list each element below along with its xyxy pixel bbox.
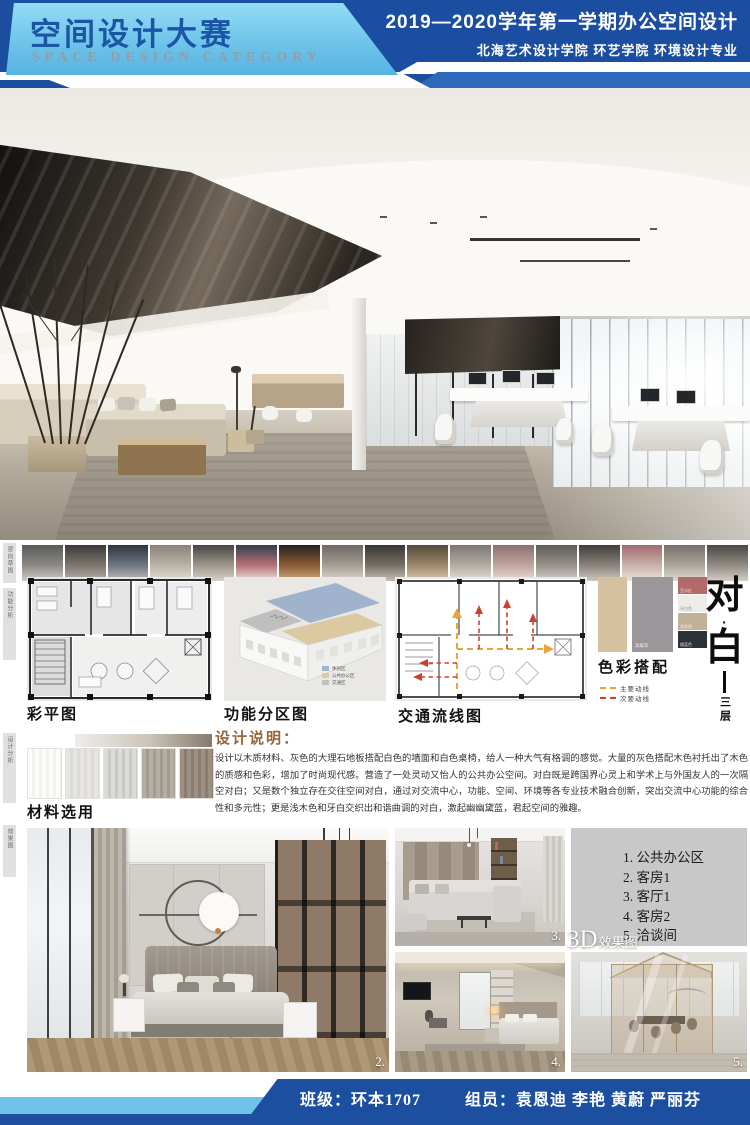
theme-floor-label: 三层	[717, 696, 733, 724]
thumbnail-image	[193, 545, 234, 581]
circulation-label: 交通流线图	[398, 705, 483, 726]
team-label: 组员：袁恩迪 李艳 黄蔚 严丽芬	[465, 1086, 701, 1110]
zoning-axon-drawing	[224, 577, 386, 701]
bedroom2-pillow	[523, 1014, 537, 1022]
hero-reception-chair	[296, 408, 312, 422]
route-dash	[600, 687, 616, 689]
thumbnail-image	[664, 545, 705, 581]
side-rail-function: 功能分析	[3, 588, 16, 660]
theme-divider-line	[723, 671, 726, 693]
palette-swatch-gray: 高级灰	[632, 577, 673, 652]
footer-credits: 班级：环本1707 组员：袁恩迪 李艳 黄蔚 严丽芬	[300, 1086, 701, 1110]
decor-gradient-bar	[75, 734, 212, 747]
route-label: 次要动线	[620, 693, 650, 703]
hero-monitor	[640, 388, 660, 402]
hero-floor-lamp-shade	[231, 366, 241, 373]
color-floor-plan	[27, 577, 212, 701]
zoning-diagram: 休闲区公共办公区交通区	[224, 577, 386, 701]
hero-monitor	[536, 372, 555, 385]
thumbnail-image	[279, 545, 320, 581]
thumbnail-image	[407, 545, 448, 581]
circulation-plan	[395, 577, 587, 701]
label-render-cn: 效果图	[599, 932, 638, 951]
meeting-floor	[571, 1053, 747, 1072]
zoning-legend-label: 休闲区	[332, 666, 346, 672]
circulation-legend-row: 主要动线	[600, 683, 650, 693]
bedroom-lamp-shade	[119, 974, 129, 983]
bedroom-nightstand	[283, 1002, 317, 1038]
hero-track-light	[520, 260, 630, 262]
thumbnail-image	[579, 545, 620, 581]
bedroom2-tv	[403, 982, 431, 1000]
room-list-item: 1. 公共办公区	[623, 848, 704, 868]
thumbnail-image	[150, 545, 191, 581]
material-swatches	[27, 748, 214, 799]
photo-number: 3.	[551, 928, 561, 944]
render-meeting-room: 5.	[571, 952, 747, 1072]
hero-monitor	[468, 372, 487, 385]
palette-gray-label: 高级灰	[635, 643, 649, 649]
bedroom2-pillow	[505, 1014, 519, 1022]
hero-desk-white	[612, 406, 750, 421]
photo-number: 4.	[551, 1054, 561, 1070]
reference-thumbnail-strip	[22, 545, 748, 581]
side-label-render: 效果图	[5, 828, 14, 849]
theme-char-bottom: 白	[705, 628, 743, 668]
hero-track-light	[470, 238, 640, 241]
design-notes-body: 设计以木质材料、灰色的大理石地板搭配白色的墙面和白色桌椅，给人一种大气有格调的感…	[215, 750, 748, 816]
zoning-legend-label: 交通区	[332, 680, 346, 686]
color-plan-label: 彩平图	[27, 703, 78, 724]
living-floor	[395, 932, 565, 946]
hero-plant-pot	[246, 430, 264, 444]
hero-ceiling-light	[430, 222, 437, 224]
label-3d: 3D	[567, 926, 598, 954]
bedroom-window	[27, 828, 94, 1060]
hero-desk-base	[470, 401, 568, 427]
palette-swatch-label: 黛蓝色	[680, 642, 692, 647]
living-sofa-chaise	[493, 886, 521, 922]
side-rail-design: 设计分析	[3, 733, 16, 803]
route-dash	[600, 697, 616, 699]
school-name: 北海艺术设计学院 环艺学院 环境设计专业	[477, 40, 738, 59]
thumbnail-image	[65, 545, 106, 581]
render-living-room: 3.	[395, 828, 565, 946]
bedroom2-window	[459, 972, 491, 1030]
material-swatch	[179, 748, 214, 799]
zoning-legend-row: 公共办公区	[322, 672, 355, 679]
bedroom2-desk	[429, 1018, 447, 1028]
hero-ceiling-light	[380, 216, 387, 218]
side-rail-render: 效果图	[3, 825, 16, 877]
hero-floor-lamp	[236, 372, 238, 430]
hero-sofa-pillow	[139, 398, 156, 411]
living-sofa-pillow	[435, 884, 449, 894]
bedroom-window-mullion	[47, 828, 49, 1060]
photo-number: 5.	[733, 1054, 743, 1070]
living-ceiling	[395, 828, 565, 842]
zoning-legend-chip	[322, 673, 329, 678]
render-bedroom-main: 2.	[27, 828, 389, 1072]
photo-number: 2.	[375, 1054, 385, 1070]
hero-sofa-pillow	[118, 397, 136, 411]
poster-title-en: SPACE DESIGN CATEGORY	[32, 50, 322, 66]
renders-section-label: 3D 效果图	[567, 926, 638, 954]
course-title: 2019—2020学年第一学期办公空间设计	[385, 7, 738, 34]
palette-swatch-tan	[598, 577, 627, 652]
living-table-leg	[485, 920, 487, 928]
zoning-legend-chip	[322, 680, 329, 685]
palette-swatch-label: 豆沙红	[680, 588, 692, 593]
thumbnail-image	[493, 545, 534, 581]
hero-sculpt-chair	[435, 414, 455, 444]
hero-desk-white	[450, 388, 588, 401]
thumbnail-image	[365, 545, 406, 581]
poster-title-cn: 空间设计大赛	[30, 9, 234, 54]
thumbnail-image	[22, 545, 63, 581]
side-label-design: 设计分析	[5, 736, 14, 764]
hero-coffee-table	[118, 440, 206, 475]
hero-sculpt-chair	[592, 424, 614, 456]
living-sofa-pillow	[415, 884, 429, 894]
room-list-item: 4. 客房2	[623, 907, 704, 927]
hero-sofa-pillow	[160, 398, 177, 411]
room-list-item: 3. 客厅1	[623, 887, 704, 907]
bedroom2-lamp-glow	[491, 1008, 497, 1014]
side-rail-concept: 意向草图	[3, 543, 16, 583]
living-chandelier-wire	[469, 828, 470, 844]
material-swatch	[27, 748, 62, 799]
circulation-legend: 主要动线次要动线	[600, 683, 650, 703]
design-competition-poster: 空间设计大赛 SPACE DESIGN CATEGORY 2019—2020学年…	[0, 0, 750, 1125]
theme-title-column: 对 · 白 三层	[701, 576, 748, 728]
living-table-leg	[461, 920, 463, 928]
bedroom2-cove-light	[395, 952, 565, 963]
circulation-legend-row: 次要动线	[600, 693, 650, 703]
material-swatch	[141, 748, 176, 799]
hero-office-rendering	[0, 88, 750, 540]
living-book	[500, 856, 503, 864]
living-book	[495, 842, 498, 850]
living-chandelier-bulb	[475, 838, 479, 842]
thumbnail-image	[450, 545, 491, 581]
living-chandelier-bulb	[467, 843, 471, 847]
footer-bottom-strip	[0, 1114, 750, 1125]
palette-swatch-label: 牙白色	[680, 606, 692, 611]
zoning-legend-chip	[322, 666, 329, 671]
materials-title: 材料选用	[27, 801, 95, 822]
header-diagonal-blue-stripe	[414, 72, 750, 88]
material-swatch	[65, 748, 100, 799]
hero-mezzanine-box-center	[405, 316, 560, 374]
zoning-legend-label: 公共办公区	[332, 673, 355, 679]
thumbnail-image	[108, 545, 149, 581]
color-floor-plan-drawing	[27, 577, 212, 701]
bedroom2-floor	[395, 1051, 565, 1072]
side-label-function: 功能分析	[5, 591, 14, 619]
hero-steel-post	[415, 370, 417, 436]
room-list-item: 2. 客房1	[623, 868, 704, 888]
material-swatch	[103, 748, 138, 799]
hero-reception-chair	[262, 406, 278, 420]
hero-sculpt-chair	[700, 440, 724, 474]
class-label: 班级：环本1707	[300, 1086, 421, 1110]
side-label-concept: 意向草图	[5, 546, 14, 574]
thumbnail-image	[322, 545, 363, 581]
living-curtain	[543, 836, 563, 922]
bedroom-window-mullion	[69, 828, 71, 1060]
route-label: 主要动线	[620, 683, 650, 693]
palette-swatch-label: 浅木色	[680, 624, 692, 629]
hero-ceiling-light	[650, 228, 657, 230]
living-ottoman	[401, 914, 427, 930]
hero-reception-desk	[252, 374, 344, 408]
thumbnail-image	[536, 545, 577, 581]
bedroom-throw	[131, 1024, 289, 1037]
bedroom-art-dot	[215, 928, 221, 934]
zoning-legend-row: 休闲区	[322, 665, 355, 672]
hero-monitor	[676, 390, 696, 404]
hero-ceiling-light	[480, 216, 487, 218]
zoning-label: 功能分区图	[224, 703, 309, 724]
design-notes-title: 设计说明：	[215, 727, 300, 748]
meeting-chair	[671, 1022, 681, 1034]
bedroom-art-disc	[199, 892, 239, 932]
circulation-plan-drawing	[395, 577, 587, 701]
thumbnail-image	[236, 545, 277, 581]
bedroom-nightstand	[113, 998, 145, 1032]
zoning-legend-row: 交通区	[322, 679, 355, 686]
hero-column	[352, 298, 366, 470]
palette-title: 色彩搭配	[598, 656, 670, 677]
hero-monitor	[502, 370, 521, 383]
zoning-legend: 休闲区公共办公区交通区	[322, 665, 355, 686]
thumbnail-image	[622, 545, 663, 581]
meeting-chair	[687, 1018, 697, 1030]
bedroom2-nightstand	[485, 1028, 499, 1042]
render-bedroom-2: 4.	[395, 952, 565, 1072]
hero-sculpt-chair	[556, 418, 574, 444]
header-title-panel: 空间设计大赛 SPACE DESIGN CATEGORY	[6, 3, 398, 75]
theme-char-top: 对	[705, 576, 743, 616]
bedroom-floor	[27, 1038, 389, 1072]
